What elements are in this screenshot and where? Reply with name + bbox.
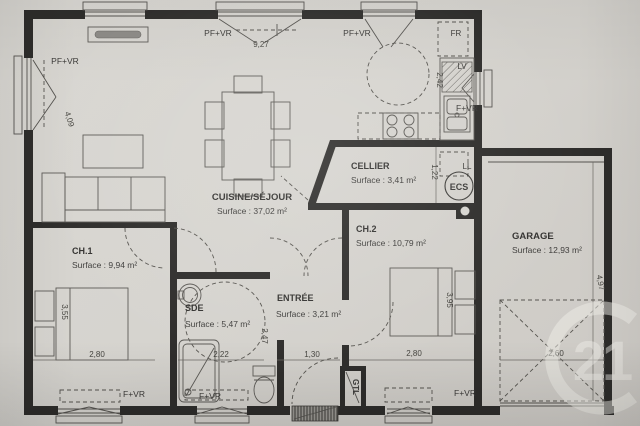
room-name-cellier: CELLIER [351, 161, 390, 171]
window-sill [14, 56, 22, 134]
window-sill [216, 2, 304, 10]
wall-cellier-south [308, 203, 474, 210]
utility-box-circle [461, 207, 470, 216]
door-arc-corridor [172, 228, 216, 272]
door-arc-sejour-left [270, 238, 308, 276]
nightstand [35, 291, 54, 321]
sink-bowl [447, 117, 467, 130]
dim-sde-width: 2,22 [213, 350, 229, 359]
dim-entree-width: 1,30 [304, 350, 320, 359]
label-water-heater: ECS [450, 182, 469, 192]
door-arc-entrance [292, 358, 338, 404]
dim-ch2-depth: 3,95 [445, 292, 454, 308]
radiator-bar [95, 31, 141, 38]
room-name-sejour: CUISINE/SÉJOUR [212, 192, 292, 203]
dining-table [222, 92, 274, 180]
chair [234, 76, 262, 93]
window-dash-box [60, 390, 120, 402]
furniture [35, 22, 604, 406]
wall-segment [247, 406, 290, 415]
dim-ch1-width: 2,80 [89, 350, 105, 359]
fridge-space [438, 22, 468, 56]
wall-entree-ch2-upper [342, 207, 349, 300]
wall-segment [338, 406, 385, 415]
dim-sejour-width: 9,27 [253, 40, 269, 49]
window-vline [33, 97, 56, 130]
labels: CUISINE/SÉJOUR Surface : 37,02 m² CELLIE… [51, 28, 606, 401]
wall-sde-entree [277, 340, 284, 406]
label-f-vr-ch2: F+VR [454, 388, 476, 398]
coffee-table [83, 135, 143, 168]
sofa [65, 177, 165, 222]
dim-garage-depth: 4,97 [595, 274, 607, 291]
nightstand [35, 327, 54, 356]
nightstand [455, 271, 475, 299]
room-name-sde: SDE [185, 303, 204, 313]
wall-segment [432, 406, 500, 415]
window-sill [361, 2, 417, 10]
wall-segment [24, 10, 85, 19]
bed-ch2 [390, 268, 452, 336]
room-surface-cellier: Surface : 3,41 m² [351, 175, 416, 185]
sofa-side [42, 173, 65, 222]
room-name-entree: ENTRÉE [277, 293, 314, 303]
wall-segment [482, 148, 612, 156]
dim-ch1-depth: 3,55 [60, 304, 69, 320]
wall-segment [474, 105, 482, 406]
stove-burner [387, 115, 397, 125]
kitchen-counter-dashed [358, 113, 440, 139]
turning-circle-kitchen [367, 43, 429, 105]
century21-watermark: 21 [552, 308, 633, 408]
window-sill [484, 70, 492, 107]
room-name-ch2: CH.2 [356, 224, 377, 234]
label-pf-vr-top-right: PF+VR [343, 28, 371, 38]
room-surface-sde: Surface : 5,47 m² [185, 319, 250, 329]
label-dishwasher: LV [457, 62, 467, 71]
nightstand [455, 305, 475, 334]
label-washing-machine: LL [463, 162, 472, 171]
wc-tank [253, 366, 275, 376]
stove-burner [387, 127, 397, 137]
watermark-number: 21 [573, 329, 632, 392]
floorplan-photo: CUISINE/SÉJOUR Surface : 37,02 m² CELLIE… [0, 0, 640, 426]
window-sill [195, 416, 249, 423]
wall-segment [24, 406, 58, 415]
window-sill [385, 416, 432, 423]
room-surface-entree: Surface : 3,21 m² [276, 309, 341, 319]
wc-bowl [254, 377, 274, 403]
window-sill [56, 416, 122, 423]
floorplan-svg: CUISINE/SÉJOUR Surface : 37,02 m² CELLIE… [0, 0, 640, 426]
wall-ch1-east [170, 222, 177, 406]
room-name-garage: GARAGE [512, 231, 554, 242]
shower-diagonal [186, 348, 214, 396]
room-surface-ch1: Surface : 9,94 m² [72, 260, 137, 270]
wall-gtl-right [361, 366, 366, 406]
wall-segment [120, 406, 197, 415]
dim-sejour-left-depth: 4,09 [63, 110, 77, 128]
wall-sde-north [172, 272, 270, 279]
dim-kitchen-counter: 2,42 [435, 72, 444, 88]
wall-ch1-north [33, 222, 173, 228]
stove-burner [404, 127, 414, 137]
door-arc-ch2 [349, 302, 393, 346]
dim-entree-depth: 2,47 [260, 328, 269, 344]
label-gtl: GTL [351, 379, 360, 395]
label-pf-vr-top-center: PF+VR [204, 28, 232, 38]
room-surface-sejour: Surface : 37,02 m² [217, 206, 287, 216]
label-f-vr-sde: F+VR [199, 391, 221, 401]
room-name-ch1: CH.1 [72, 246, 93, 256]
wall-cellier-north [330, 140, 474, 147]
window-vline [264, 19, 301, 43]
wall-gtl-left [340, 366, 345, 406]
wall-segment [302, 10, 363, 19]
chair [205, 102, 224, 129]
wall-segment [474, 10, 482, 72]
wall-cellier-diagonal [308, 140, 338, 203]
window-sill [83, 2, 147, 10]
wall-segment [415, 10, 482, 19]
dim-cellier-depth: 1,22 [430, 164, 439, 180]
wall-segment [24, 130, 33, 415]
door-arc-sejour-right [304, 238, 342, 276]
room-surface-ch2: Surface : 10,79 m² [356, 238, 426, 248]
chair [205, 140, 224, 167]
window-dash-box [385, 388, 432, 402]
wall-entree-ch2-lower [342, 345, 349, 368]
dim-ch2-width: 2,80 [406, 349, 422, 358]
wall-segment [24, 10, 33, 58]
label-f-vr-ch1: F+VR [123, 389, 145, 399]
room-surface-garage: Surface : 12,93 m² [512, 245, 582, 255]
label-pf-vr-left: PF+VR [51, 56, 79, 66]
stove-burner [404, 115, 414, 125]
wall-segment [145, 10, 218, 19]
label-fridge: FR [451, 29, 462, 38]
label-f-vr-kitchen: F+VR [456, 103, 478, 113]
